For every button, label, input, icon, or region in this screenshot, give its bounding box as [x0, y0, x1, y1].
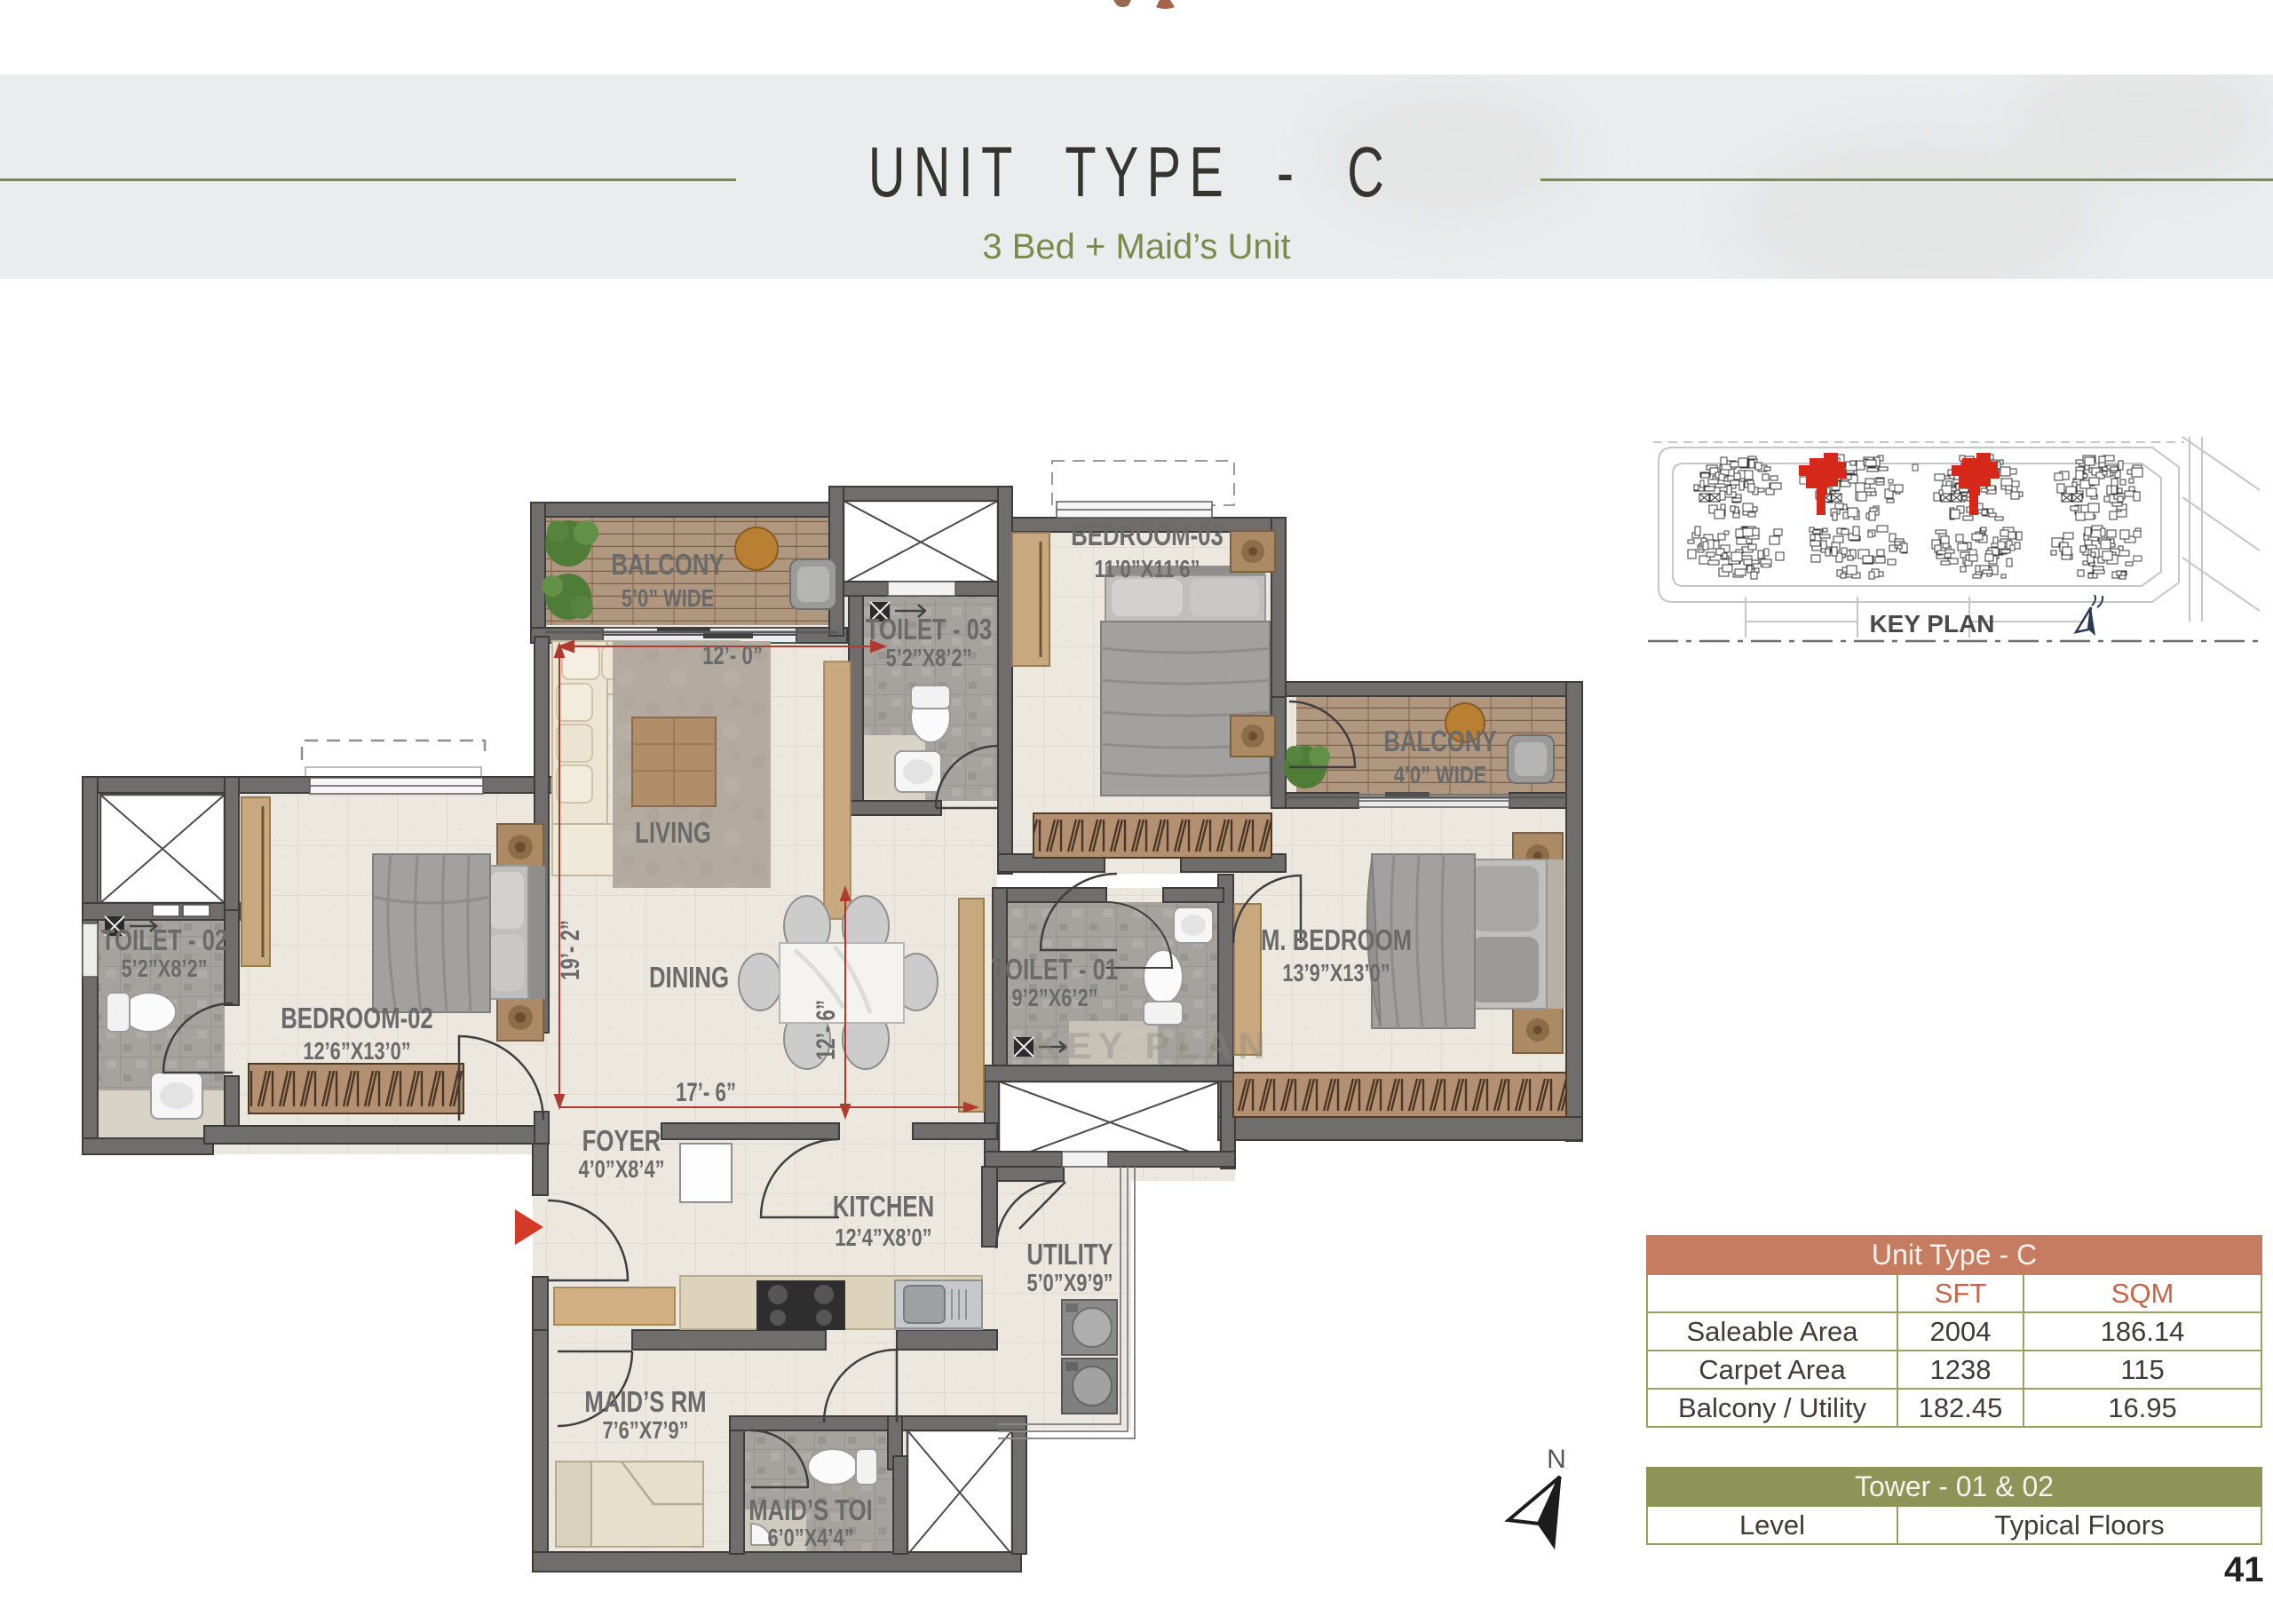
svg-text:5’0” WIDE: 5’0” WIDE	[622, 584, 714, 612]
svg-text:UTILITY: UTILITY	[1026, 1239, 1113, 1271]
svg-text:LIVING: LIVING	[635, 817, 711, 850]
svg-text:9’2”X6’2”: 9’2”X6’2”	[1011, 984, 1097, 1011]
svg-text:5’2”X8’2”: 5’2”X8’2”	[885, 644, 971, 671]
svg-text:DINING: DINING	[649, 962, 729, 994]
svg-text:KEY PLAN: KEY PLAN	[1869, 610, 1994, 638]
svg-text:TOILET - 03: TOILET - 03	[866, 614, 992, 646]
svg-text:MAID’S RM: MAID’S RM	[584, 1386, 706, 1419]
svg-text:12’- 0”: 12’- 0”	[702, 640, 763, 670]
svg-text:M. BEDROOM: M. BEDROOM	[1261, 924, 1412, 957]
svg-text:4’0”X8’4”: 4’0”X8’4”	[578, 1155, 664, 1183]
svg-text:N: N	[1547, 1445, 1566, 1474]
svg-text:6’0”X4’4”: 6’0”X4’4”	[767, 1524, 853, 1551]
svg-text:12’- 6”: 12’- 6”	[811, 1000, 841, 1060]
svg-text:FOYER: FOYER	[582, 1125, 661, 1158]
svg-text:12’4”X8’0”: 12’4”X8’0”	[835, 1224, 931, 1251]
svg-text:TOILET - 01: TOILET - 01	[992, 954, 1118, 986]
svg-text:MAID’S TOI: MAID’S TOI	[748, 1494, 873, 1527]
svg-text:KITCHEN: KITCHEN	[833, 1191, 934, 1224]
svg-text:11’0”X11’6”: 11’0”X11’6”	[1095, 555, 1200, 582]
svg-text:4’0” WIDE: 4’0” WIDE	[1394, 761, 1486, 788]
svg-text:TOILET - 02: TOILET - 02	[101, 924, 227, 957]
svg-text:BEDROOM-02: BEDROOM-02	[281, 1002, 433, 1035]
svg-text:BEDROOM-03: BEDROOM-03	[1071, 519, 1224, 552]
svg-text:12’6”X13’0”: 12’6”X13’0”	[303, 1037, 410, 1065]
svg-text:17’- 6”: 17’- 6”	[676, 1077, 736, 1107]
svg-text:BALCONY: BALCONY	[1383, 725, 1496, 758]
svg-text:BALCONY: BALCONY	[611, 549, 724, 582]
svg-text:5’2”X8’2”: 5’2”X8’2”	[121, 955, 207, 982]
svg-text:7’6”X7’9”: 7’6”X7’9”	[602, 1416, 688, 1444]
svg-text:5’0”X9’9”: 5’0”X9’9”	[1026, 1269, 1113, 1296]
svg-text:13’9”X13’0”: 13’9”X13’0”	[1282, 959, 1390, 986]
svg-text:19’- 2”: 19’- 2”	[555, 920, 585, 980]
svg-text:KEY PLAN: KEY PLAN	[1034, 1025, 1271, 1066]
